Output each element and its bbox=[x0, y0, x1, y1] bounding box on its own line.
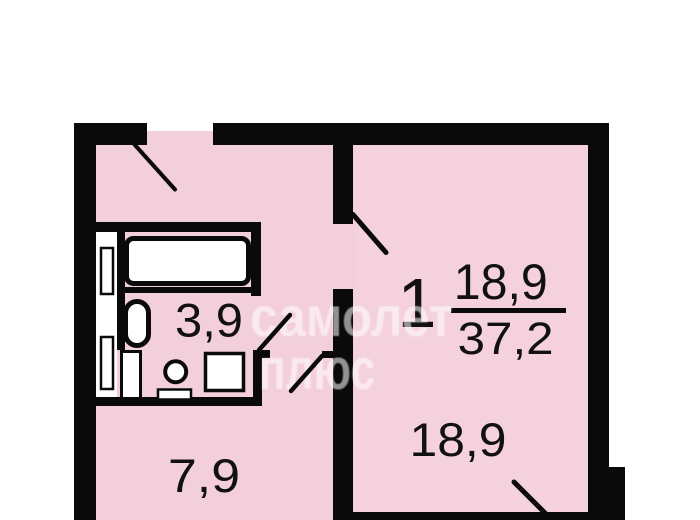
svg-text:18,9: 18,9 bbox=[410, 413, 507, 466]
svg-text:3,9: 3,9 bbox=[175, 294, 243, 347]
svg-text:7,9: 7,9 bbox=[168, 449, 240, 502]
svg-text:18,9: 18,9 bbox=[454, 254, 548, 310]
svg-text:37,2: 37,2 bbox=[458, 313, 554, 364]
svg-text:плюс: плюс bbox=[259, 337, 375, 402]
